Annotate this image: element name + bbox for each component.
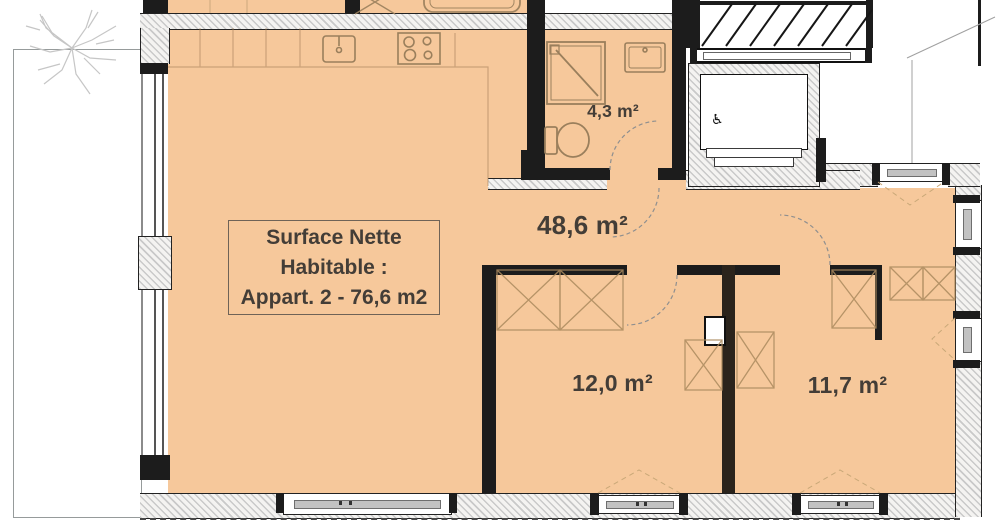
elevator-door-inner [714,157,794,167]
cap-rw-2 [953,247,980,255]
wall-topright-b [948,163,980,187]
wall-stub-topleft [143,0,168,13]
cap-rw-3 [953,311,980,319]
right-window-lower [955,318,982,362]
cap-tw-1 [872,163,880,185]
wall-bath-right [672,0,686,180]
bathroom-area-label: 4,3 m² [560,101,666,122]
floor-plan: ♿ 4,3 m² 48,6 m² 12,0 m² 11,7 m² Surface… [0,0,1000,523]
wall-hall-bed2 [830,265,877,275]
landing-cap-right [865,48,872,63]
wall-kitchen-bath-foot [521,150,545,180]
jamb-b1-2 [679,493,688,515]
living-window [283,493,452,515]
wall-outer-topright-line [978,0,981,66]
jamb-lw-2 [449,493,457,513]
wall-left-upper [140,28,170,64]
wall-hall-bed1-a [482,265,627,275]
wall-bed-separator [722,265,735,493]
jamb-b2-2 [879,493,888,515]
stair-landing-inner [703,52,851,60]
wall-top-exterior [140,13,686,30]
bedroom2-window [800,495,882,514]
wall-left-pillar2 [138,236,172,290]
bedroom1-area-label: 12,0 m² [545,370,680,397]
wall-bath-bottom [545,168,610,180]
surface-note-line2: Habitable : [280,253,387,283]
wall-strip-divider [345,0,360,13]
bedroom1-window [598,495,682,514]
wheelchair-icon: ♿ [711,112,724,128]
jamb-lw-1 [276,493,284,513]
surface-note-line3: Appart. 2 - 76,6 m2 [241,283,428,313]
wall-shaft-side-piece [816,138,826,182]
bedroom2-area-label: 11,7 m² [780,372,915,399]
wall-stair-left-stub [686,0,700,48]
terrace-outline [13,49,142,518]
footprint-dashed-line [140,518,960,520]
jamb-b1-1 [590,493,599,515]
living-area-label: 48,6 m² [500,210,665,241]
wall-living-bed1 [482,265,496,493]
top-corridor-floor [545,0,686,13]
surface-note-box: Surface Nette Habitable : Appart. 2 - 76… [228,220,440,315]
cap-left-window-top [140,63,168,74]
surface-note-line1: Surface Nette [266,223,401,253]
cap-rw-1 [953,195,980,203]
cap-tw-2 [942,163,950,185]
corner-bottom-left [140,455,170,480]
landing-cap-left [690,48,697,63]
wall-bed2-nook [875,265,882,340]
wall-stair-right-stringer [866,0,873,48]
jamb-b2-1 [792,493,801,515]
right-window-upper [955,200,982,249]
separator-niche [704,316,726,346]
topright-window [878,163,946,182]
stair-top-cut-line [688,1,872,5]
cap-rw-4 [953,360,980,368]
